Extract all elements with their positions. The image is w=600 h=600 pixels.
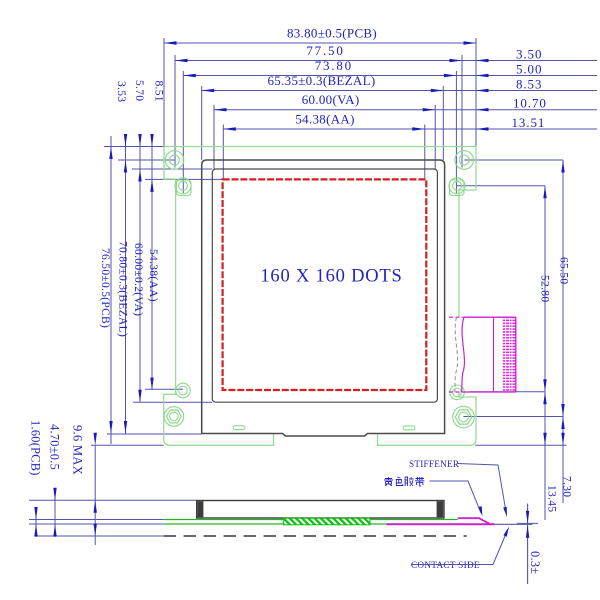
svg-text:76.50±0.5(PCB): 76.50±0.5(PCB) [99,248,111,328]
svg-text:5.00: 5.00 [516,62,542,77]
svg-text:73.80: 73.80 [315,58,353,73]
svg-text:1.60(PCB): 1.60(PCB) [29,420,43,476]
svg-text:54.38(AA): 54.38(AA) [295,111,354,126]
svg-text:70.80±0.3(BEZAL): 70.80±0.3(BEZAL) [117,241,129,337]
svg-text:8.51: 8.51 [153,81,165,102]
svg-text:65.35±0.3(BEZAL): 65.35±0.3(BEZAL) [268,73,376,88]
svg-text:4.70±0.5: 4.70±0.5 [48,424,62,470]
svg-text:10.70: 10.70 [513,96,547,111]
svg-text:77.50: 77.50 [306,43,344,58]
svg-text:9.6 MAX: 9.6 MAX [71,425,85,475]
svg-text:54.38(AA): 54.38(AA) [147,249,159,302]
svg-text:7.30: 7.30 [561,476,573,497]
svg-text:60.00±0.2(VA): 60.00±0.2(VA) [132,243,144,316]
svg-text:3.53: 3.53 [115,81,127,102]
svg-text:83.80±0.5(PCB): 83.80±0.5(PCB) [287,25,377,40]
svg-text:65.50: 65.50 [558,257,570,284]
svg-text:0.3±: 0.3± [528,551,542,574]
svg-text:160 X 160 DOTS: 160 X 160 DOTS [260,267,402,287]
svg-text:60.00(VA): 60.00(VA) [302,92,360,107]
svg-text:52.80: 52.80 [539,275,551,302]
svg-text:13.45: 13.45 [546,485,558,512]
svg-text:3.50: 3.50 [516,47,542,62]
svg-text:STIFFENER: STIFFENER [409,459,460,469]
svg-text:5.70: 5.70 [133,80,145,101]
svg-text:13.51: 13.51 [512,115,546,130]
svg-text:8.53: 8.53 [516,77,542,92]
